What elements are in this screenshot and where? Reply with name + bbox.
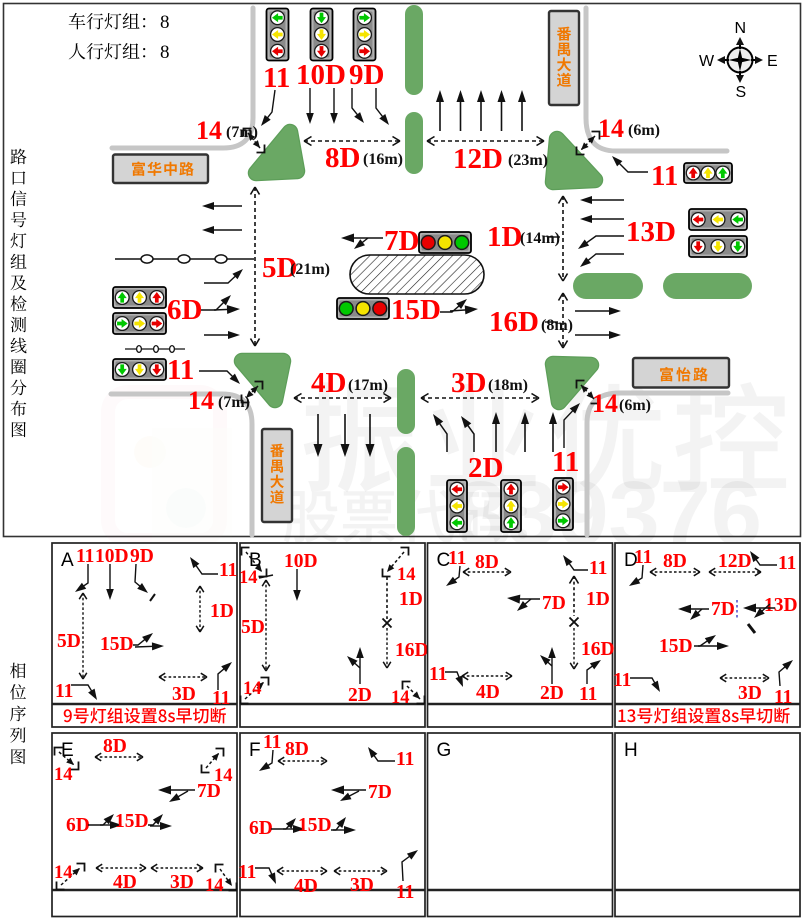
svg-text:6D: 6D [249,818,273,839]
svg-text:15D: 15D [100,634,134,655]
svg-text:14: 14 [239,568,258,588]
svg-text:16D: 16D [581,639,615,660]
svg-text:2D: 2D [348,685,372,706]
svg-text:(14m): (14m) [520,230,560,247]
svg-text:9D: 9D [349,59,384,91]
svg-text:7D: 7D [384,225,419,257]
svg-text:11: 11 [238,862,256,883]
svg-text:(21m): (21m) [290,261,330,278]
svg-text:6D: 6D [167,294,202,326]
svg-text:(6m): (6m) [619,397,651,414]
svg-text:(7m): (7m) [226,124,258,141]
svg-text:15D: 15D [391,294,441,326]
svg-text:12D: 12D [718,551,752,572]
svg-text:7D: 7D [542,593,566,614]
svg-text:(8m): (8m) [541,317,573,334]
svg-text:F: F [249,740,261,761]
svg-text:S: S [736,84,747,101]
svg-text:11: 11 [167,354,194,386]
svg-text:11: 11 [613,670,631,691]
svg-text:11: 11 [396,749,414,770]
svg-text:11: 11 [651,160,678,192]
svg-text:14: 14 [188,386,214,415]
svg-text:11: 11 [579,684,597,705]
svg-text:W: W [699,53,715,70]
svg-text:8D: 8D [285,739,309,760]
svg-text:4D: 4D [476,682,500,703]
svg-text:16D: 16D [489,306,539,338]
svg-text:11: 11 [448,548,466,569]
svg-text:11: 11 [263,62,290,94]
svg-text:15D: 15D [115,811,149,832]
svg-text:5D: 5D [57,631,81,652]
svg-text:6D: 6D [66,815,90,836]
svg-text:11: 11 [396,882,414,903]
svg-text:1D: 1D [586,589,610,610]
svg-text:3D: 3D [738,683,762,704]
svg-text:3D: 3D [451,367,486,399]
svg-text:(18m): (18m) [488,377,528,394]
svg-text:14: 14 [54,765,73,785]
svg-text:11: 11 [212,688,230,709]
svg-text:14: 14 [196,116,222,145]
svg-text:15D: 15D [298,815,332,836]
svg-text:H: H [624,740,638,761]
svg-text:14: 14 [592,389,618,418]
svg-text:N: N [735,20,747,37]
svg-text:8D: 8D [103,736,127,757]
svg-text:G: G [437,740,452,761]
svg-text:10D: 10D [284,551,318,572]
svg-text:14: 14 [391,688,410,708]
svg-text:E: E [61,740,74,761]
svg-text:1D: 1D [399,589,423,610]
svg-text:11: 11 [55,681,73,702]
svg-text:14: 14 [54,863,73,883]
svg-text:7D: 7D [711,599,735,620]
svg-text:(17m): (17m) [348,377,388,394]
svg-text:11: 11 [219,560,237,581]
svg-text:12D: 12D [453,143,503,175]
svg-text:10D: 10D [296,59,346,91]
svg-text:A: A [61,550,74,571]
svg-text:3D: 3D [172,684,196,705]
svg-text:1D: 1D [487,221,522,253]
svg-text:14: 14 [598,114,624,143]
svg-text:16D: 16D [395,640,429,661]
svg-text:11: 11 [263,732,281,753]
svg-text:9D: 9D [130,546,154,567]
svg-text:4D: 4D [294,876,318,897]
svg-text:1D: 1D [210,601,234,622]
svg-text:3D: 3D [170,872,194,893]
svg-text:15D: 15D [659,636,693,657]
svg-text:4D: 4D [113,872,137,893]
svg-text:E: E [767,53,778,70]
svg-text:11: 11 [76,546,94,567]
svg-text:14: 14 [243,679,262,699]
svg-text:14: 14 [205,876,224,896]
svg-text:4D: 4D [311,367,346,399]
svg-text:(6m): (6m) [628,122,660,139]
svg-text:11: 11 [429,664,447,685]
svg-text:11: 11 [552,446,579,478]
svg-text:10D: 10D [95,546,129,567]
svg-text:13D: 13D [626,216,676,248]
svg-text:8D: 8D [325,142,360,174]
svg-text:3D: 3D [350,875,374,896]
svg-text:(7m): (7m) [218,394,250,411]
svg-text:8: 8 [160,42,170,63]
svg-text:11: 11 [634,547,652,568]
svg-text:8: 8 [160,12,170,33]
svg-text:7D: 7D [197,781,221,802]
svg-text:(16m): (16m) [363,151,403,168]
svg-text:8D: 8D [663,551,687,572]
svg-text:8D: 8D [475,552,499,573]
svg-text:2D: 2D [540,683,564,704]
svg-text:(23m): (23m) [508,152,548,169]
svg-text:11: 11 [774,687,792,708]
svg-text:7D: 7D [368,782,392,803]
svg-text:5D: 5D [241,617,265,638]
svg-text:11: 11 [589,558,607,579]
svg-text:2D: 2D [468,452,503,484]
svg-text:11: 11 [778,553,796,574]
svg-text:14: 14 [397,565,416,585]
